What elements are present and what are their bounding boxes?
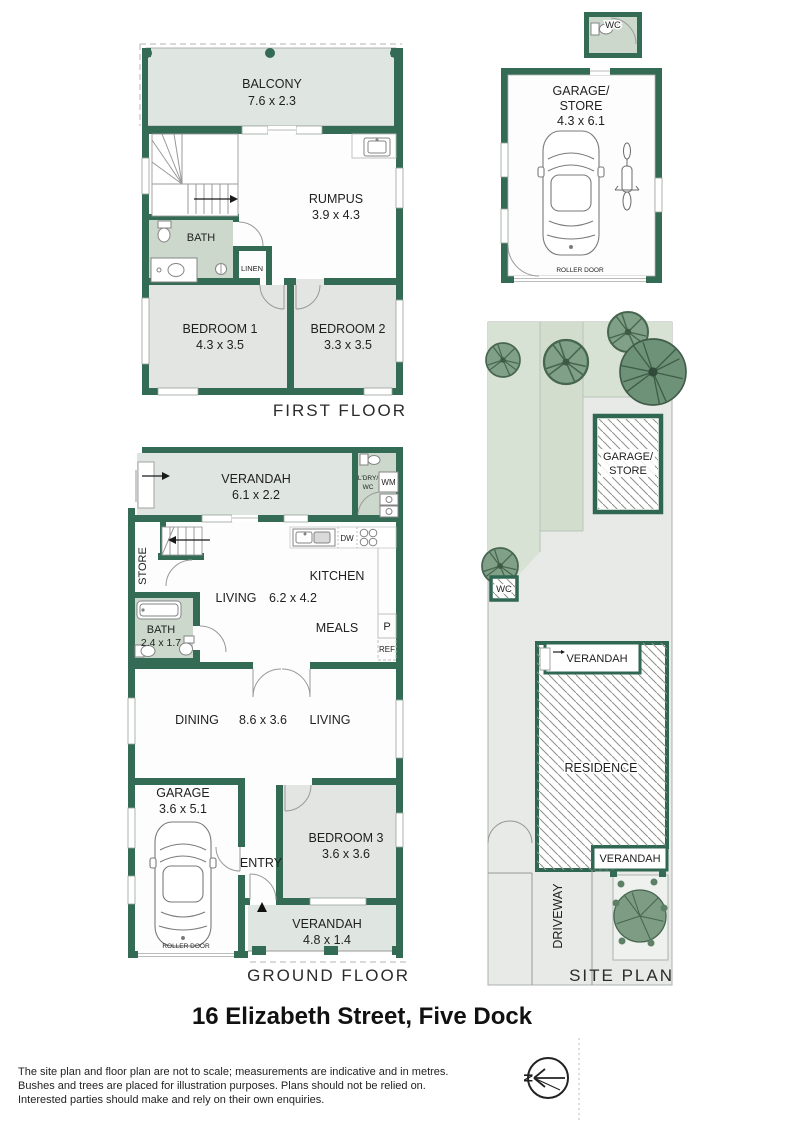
floorplan-page: BALCONY 7.6 x 2.3 RUMPUS 3.9 x 4.3 BATH …: [0, 0, 800, 1131]
site-residence: [537, 643, 667, 870]
rumpus-sink-icon: [352, 134, 396, 158]
washing-machine-label: WM: [381, 478, 396, 487]
living-kitchen-dims: 6.2 x 4.2: [269, 591, 317, 605]
verandah-front-label: VERANDAH: [221, 472, 290, 486]
entry-label: ENTRY: [240, 856, 283, 870]
shrub-dot: [661, 905, 668, 912]
page-title: 16 Elizabeth Street, Five Dock: [0, 1003, 724, 1031]
garage-store-label-2: STORE: [560, 99, 603, 113]
bedroom1-dims: 4.3 x 3.5: [196, 338, 244, 352]
car-icon-outbuilding: [538, 131, 604, 255]
floorplan-canvas: BALCONY 7.6 x 2.3 RUMPUS 3.9 x 4.3 BATH …: [0, 0, 800, 1131]
rumpus-dims: 3.9 x 4.3: [312, 208, 360, 222]
dining-living-dims: 8.6 x 3.6: [239, 713, 287, 727]
site-rear-garden: [610, 870, 668, 960]
pantry-label: P: [383, 621, 390, 633]
balcony-label: BALCONY: [242, 77, 302, 91]
site-residence-label: RESIDENCE: [565, 761, 638, 775]
site-verandah-front-label: VERANDAH: [566, 653, 627, 665]
wc-outbuilding-label: WC: [605, 20, 621, 31]
roller-door-label-garage: ROLLER DOOR: [162, 943, 210, 950]
bath-label-gf: BATH: [147, 624, 176, 636]
roller-door-label-outbuilding: ROLLER DOOR: [556, 267, 604, 274]
bush-icon: [614, 890, 666, 942]
bedroom3-label: BEDROOM 3: [308, 831, 383, 845]
linen-label: LINEN: [241, 264, 263, 273]
verandah-front-dims: 6.1 x 2.2: [232, 488, 280, 502]
ground-floor-plan: WM L'DRY/ WC STORE BATH 2.4 x 1.7: [128, 447, 410, 985]
balcony-dims: 7.6 x 2.3: [248, 94, 296, 108]
site-plan-title: SITE PLAN: [569, 966, 674, 985]
verandah-rear-label: VERANDAH: [292, 917, 361, 931]
large-tree-icon: [620, 339, 686, 405]
car-icon-garage: [150, 822, 216, 946]
tree-icon: [486, 343, 520, 377]
shrub-dot: [651, 879, 658, 886]
meals-label: MEALS: [316, 621, 358, 635]
bedroom2-dims: 3.3 x 3.5: [324, 338, 372, 352]
dining-label: DINING: [175, 713, 219, 727]
disclaimer-line-2: Bushes and trees are placed for illustra…: [18, 1080, 578, 1092]
bedroom1-label: BEDROOM 1: [182, 322, 257, 336]
dishwasher-label: DW: [340, 534, 354, 543]
disclaimer-line-1: The site plan and floor plan are not to …: [18, 1066, 578, 1078]
laundry-label-2: WC: [363, 484, 374, 491]
ground-floor-title: GROUND FLOOR: [247, 966, 410, 985]
site-wc-label: WC: [496, 584, 512, 595]
garage-store-label-1: GARAGE/: [553, 84, 610, 98]
garage-dims: 3.6 x 5.1: [159, 802, 207, 816]
site-garage-store: [595, 416, 661, 512]
site-garage-store-label-1: GARAGE/: [603, 451, 654, 463]
shrub-dot: [648, 940, 655, 947]
laundry-label-1: L'DRY/: [358, 475, 378, 482]
verandah-rear-dims: 4.8 x 1.4: [303, 933, 351, 947]
living-rear-label: LIVING: [310, 713, 351, 727]
site-porch-step: [540, 648, 550, 670]
kitchen-label: KITCHEN: [310, 569, 365, 583]
stairs-icon-ff: [152, 134, 238, 216]
shrub-dot: [613, 900, 620, 907]
bath-label-ff: BATH: [187, 232, 216, 244]
bedroom1-room: [149, 285, 287, 388]
shrub-dot: [618, 881, 625, 888]
garage-label: GARAGE: [156, 786, 210, 800]
disclaimer-line-3: Interested parties should make and rely …: [18, 1094, 578, 1106]
site-driveway-label: DRIVEWAY: [551, 883, 565, 949]
living-label: LIVING: [216, 591, 257, 605]
bath-dims-gf: 2.4 x 1.7: [141, 637, 181, 649]
rumpus-label: RUMPUS: [309, 192, 363, 206]
toilet-icon-wc: [591, 23, 599, 35]
first-floor-title: FIRST FLOOR: [273, 401, 407, 420]
fridge-label: REF: [379, 645, 395, 654]
site-garage-store-label-2: STORE: [609, 465, 647, 477]
first-floor-plan: BALCONY 7.6 x 2.3 RUMPUS 3.9 x 4.3 BATH …: [140, 44, 407, 420]
bedroom3-dims: 3.6 x 3.6: [322, 847, 370, 861]
bedroom2-label: BEDROOM 2: [310, 322, 385, 336]
site-verandah-rear-label: VERANDAH: [599, 853, 660, 865]
shrub-dot: [619, 938, 626, 945]
site-plan: GARAGE/ STORE WC VERANDAH RESIDENCE VERA…: [482, 312, 686, 985]
tree-icon: [544, 340, 588, 384]
garage-store-dims: 4.3 x 6.1: [557, 114, 605, 128]
outbuilding-plan: WC GARAGE/ STORE 4.3 x 6.1 ROLLER DOOR: [501, 12, 662, 283]
store-label: STORE: [137, 547, 149, 585]
